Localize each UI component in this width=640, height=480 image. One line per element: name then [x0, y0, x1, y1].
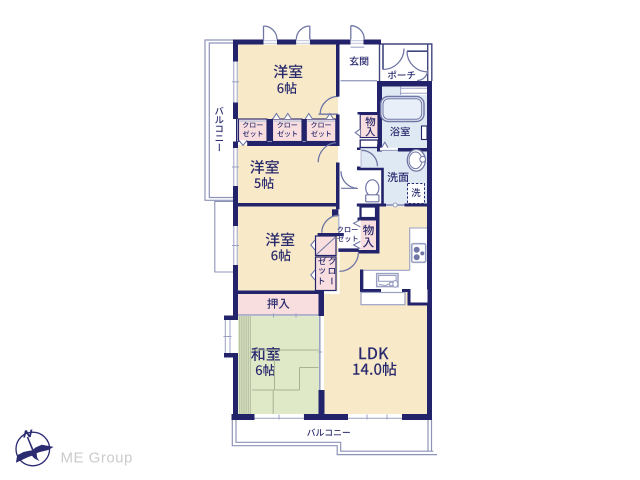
svg-text:ME Group: ME Group: [61, 450, 133, 467]
